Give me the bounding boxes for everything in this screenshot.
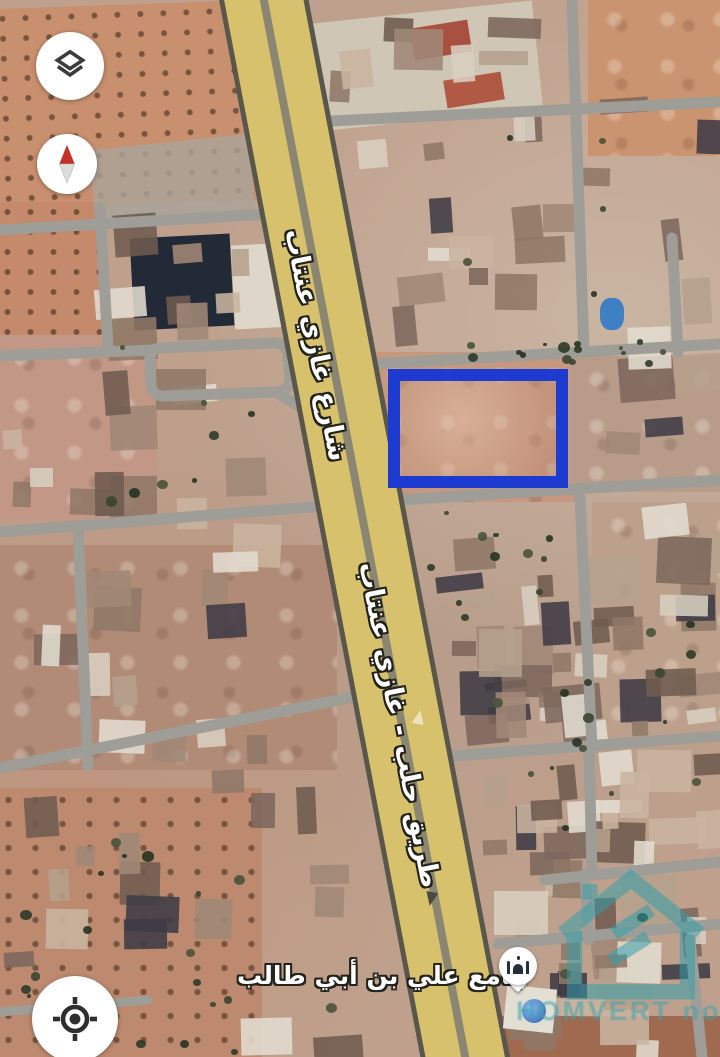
marker-disc [499,947,537,985]
tree [98,871,104,877]
tree [467,342,475,349]
tree [231,1049,238,1055]
highlighted-plot[interactable] [388,369,568,488]
tree [645,360,653,367]
tree [550,766,554,770]
tree [463,258,473,267]
tree [579,745,587,752]
tree [20,910,31,920]
layers-icon [50,46,90,86]
tree [692,778,701,786]
tree [609,791,614,796]
tree [209,431,218,439]
tree [528,771,534,777]
tree [456,600,462,605]
tree [562,825,569,831]
tree [224,996,232,1004]
tree [599,138,606,144]
tree [21,985,32,994]
tree [461,614,469,621]
tree [444,511,449,515]
tree [520,352,526,358]
tree [27,994,31,998]
watermark-text: HOMVERT noga [516,996,720,1027]
tree [686,621,694,628]
tree [129,488,140,498]
tree [543,343,547,347]
tree [569,359,576,365]
tree [492,698,504,708]
tree [468,353,478,362]
tree [196,891,201,896]
tree [490,552,500,561]
tree [493,533,498,538]
tree [192,478,197,483]
tree [427,564,435,571]
mosque-icon [507,959,529,974]
my-location-button[interactable] [32,976,118,1057]
compass-icon [54,143,80,185]
tree [122,854,127,859]
tree [686,650,696,659]
compass-button[interactable] [37,134,97,194]
tree [478,532,488,541]
tree [584,679,591,686]
tree [655,668,665,677]
tree [546,535,553,541]
tree [106,496,118,507]
my-location-icon [52,996,98,1042]
tree [646,628,656,637]
mosque-label: جامع علي بن أبي طالب [237,961,528,990]
tree [142,851,153,861]
tree [560,969,572,979]
tree [507,135,514,141]
tree [583,713,594,723]
tree [600,206,607,212]
tree [234,875,245,885]
tree [193,979,201,986]
tree [326,1003,337,1013]
trees-layer [0,0,720,1057]
tree [210,1002,215,1007]
satellite-map[interactable]: شارع غازي عنتاب طريق حلب - غازي عنتاب جا… [0,0,720,1057]
tree [558,342,570,353]
tree [637,339,643,344]
tree [523,549,533,558]
tree [560,689,570,698]
tree [637,913,648,923]
tree [83,926,92,934]
mosque-marker[interactable] [499,947,537,985]
tree [186,949,195,957]
tree [120,345,125,349]
tree [619,346,623,350]
layers-button[interactable] [36,32,104,100]
tree [248,411,254,417]
tree [591,291,597,297]
tree [111,838,121,847]
tree [31,972,40,980]
tree [180,1040,189,1048]
tree [136,1040,145,1048]
tree [660,349,667,355]
tree [201,400,207,406]
tree [536,589,542,595]
tree [157,480,167,489]
tree [621,351,626,356]
tree [541,556,547,562]
tree [663,720,668,724]
